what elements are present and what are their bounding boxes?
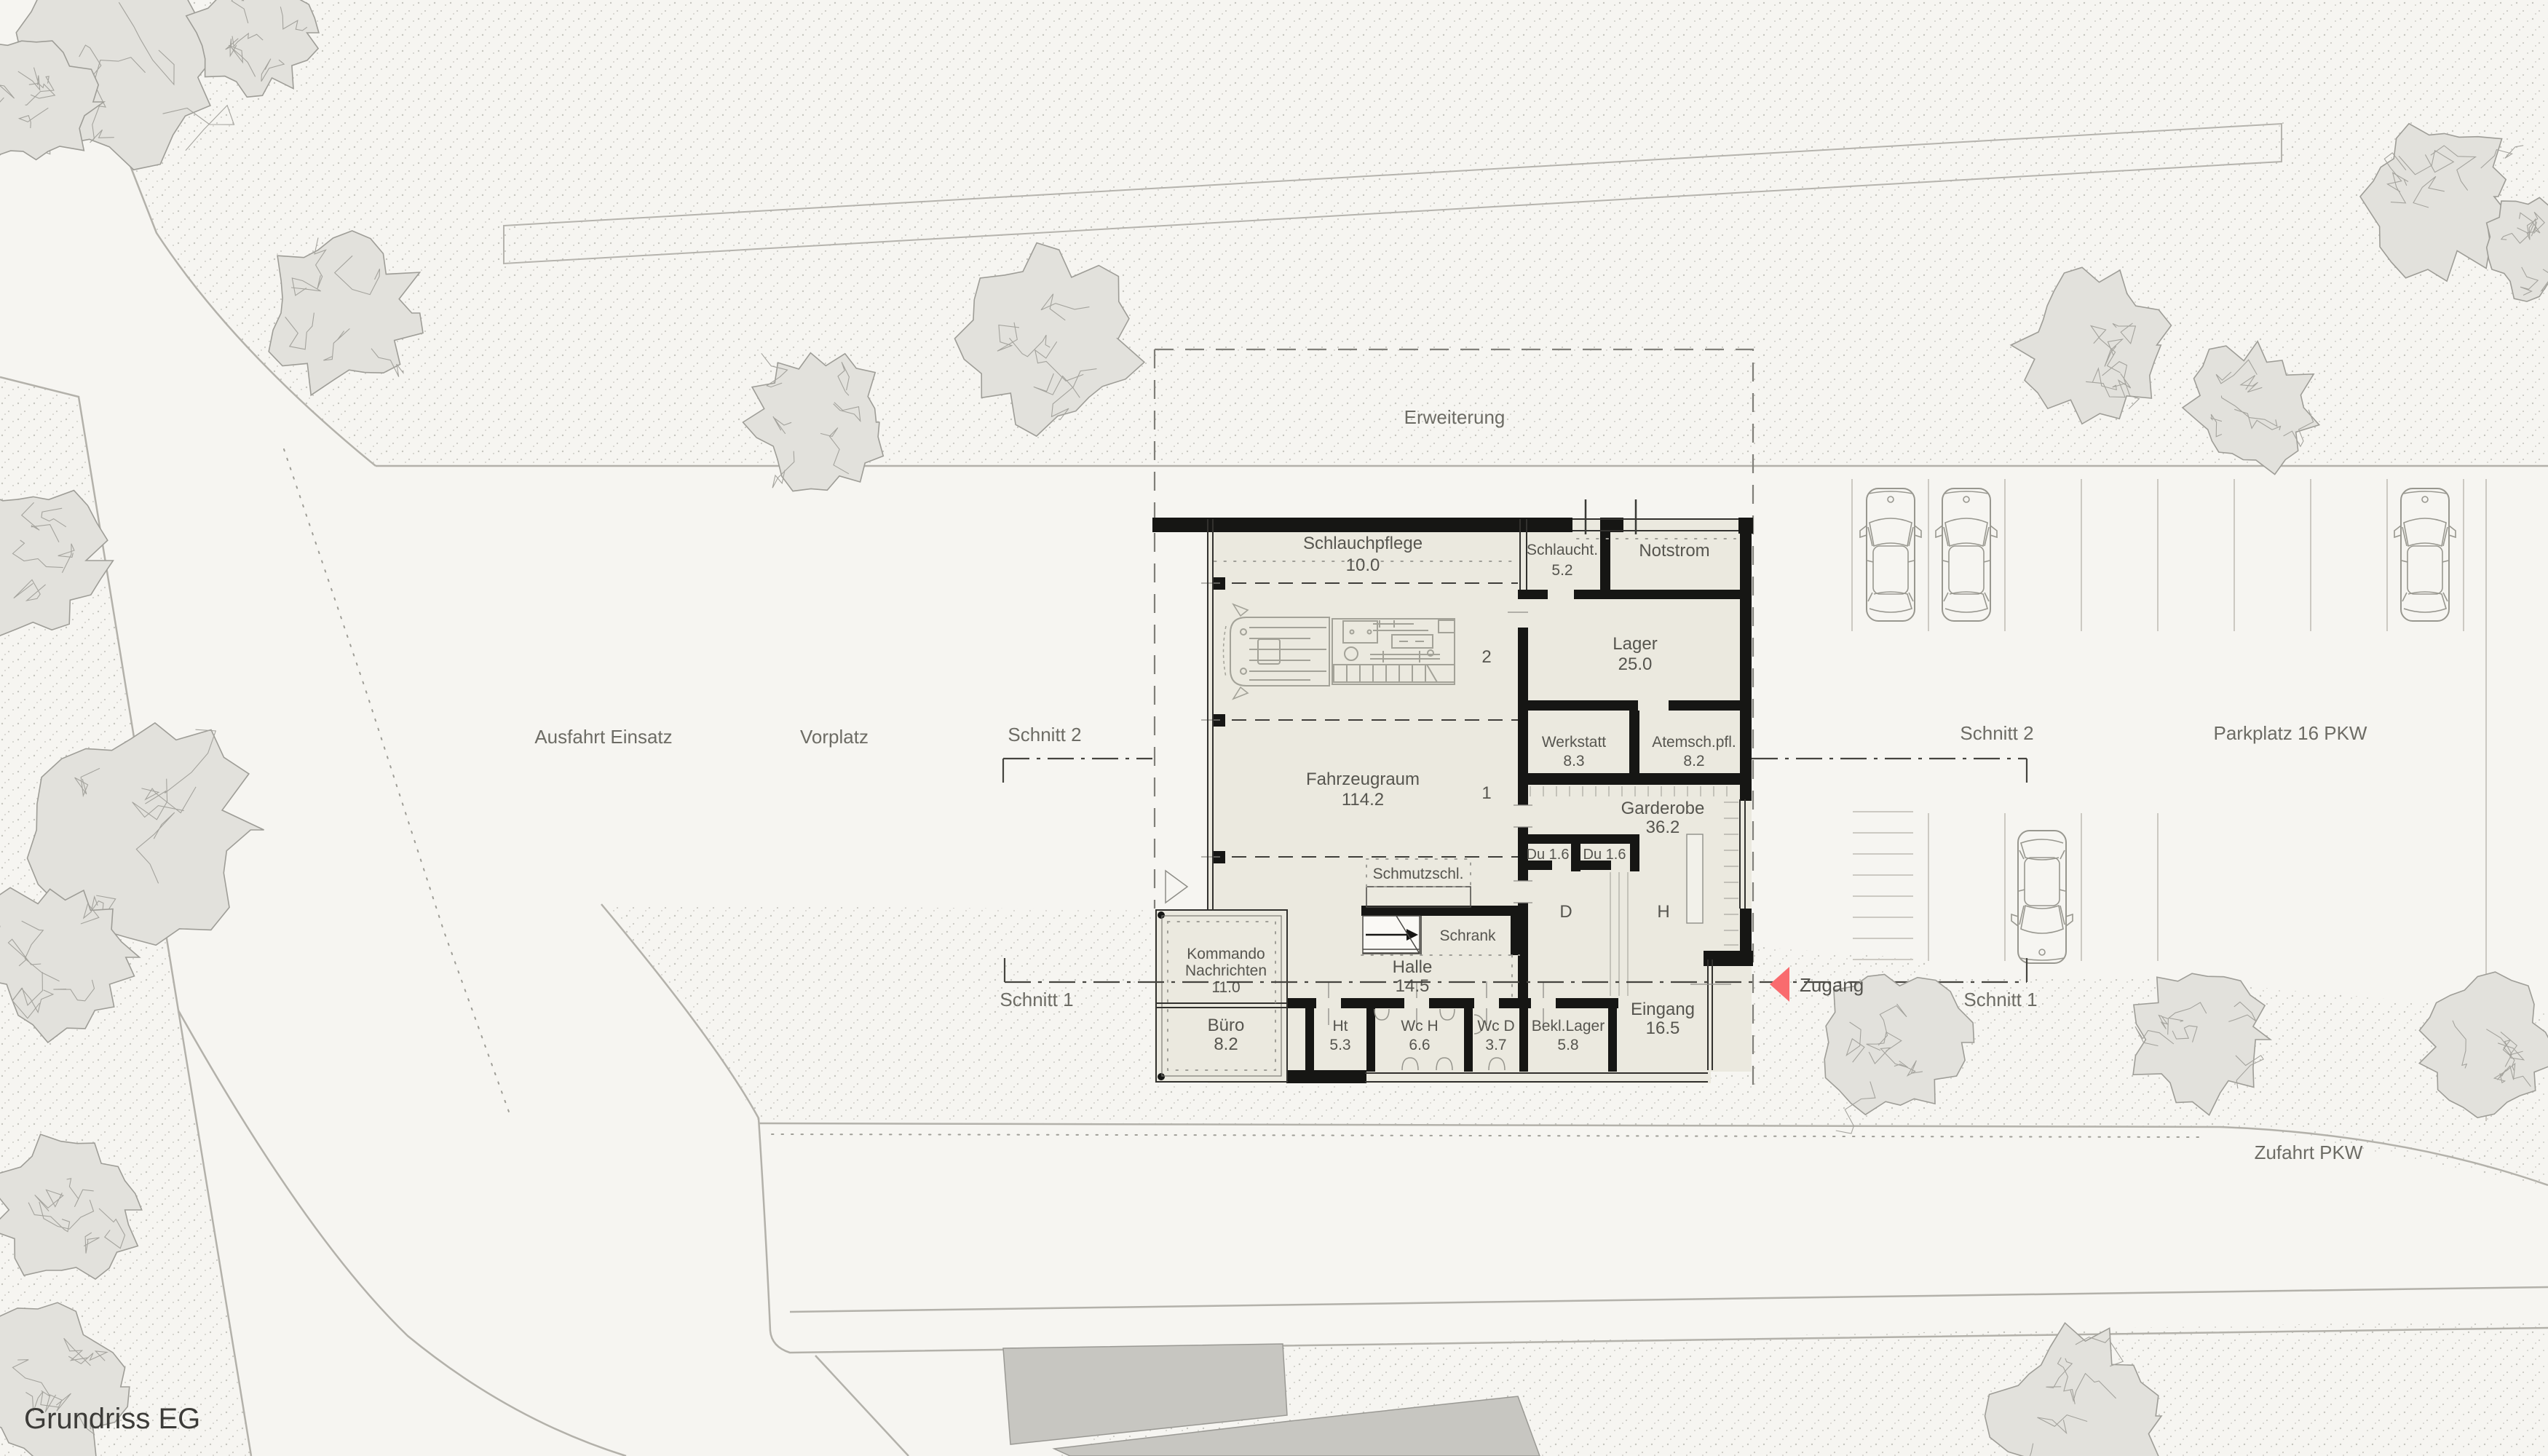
area-label-eingang: 16.5 bbox=[1646, 1018, 1680, 1038]
building-floor bbox=[1208, 519, 1752, 1072]
room-label-kommando-1: Kommando bbox=[1187, 946, 1265, 962]
room-label-ht: Ht bbox=[1333, 1018, 1348, 1034]
area-label-schlauchpflege: 10.0 bbox=[1346, 555, 1380, 575]
room-label-eingang: Eingang bbox=[1631, 1000, 1695, 1019]
room-label-werkstatt: Werkstatt bbox=[1542, 734, 1606, 751]
area-label-wc-h: 6.6 bbox=[1409, 1037, 1430, 1053]
area-label-halle: 14.5 bbox=[1396, 976, 1430, 996]
lane-number-1: 1 bbox=[1481, 783, 1491, 803]
label-schnitt2-right: Schnitt 2 bbox=[1960, 722, 2033, 744]
room-label-buero: Büro bbox=[1208, 1016, 1245, 1035]
car bbox=[1936, 488, 1997, 621]
label-zugang: Zugang bbox=[1800, 974, 1864, 996]
stair bbox=[1363, 916, 1420, 954]
texture-north bbox=[66, 0, 2548, 466]
area-label-lager: 25.0 bbox=[1618, 654, 1653, 674]
car bbox=[2011, 831, 2073, 963]
area-label-schlaucht: 5.2 bbox=[1551, 562, 1572, 579]
room-label-garderobe: Garderobe bbox=[1621, 799, 1705, 818]
page-title: Grundriss EG bbox=[24, 1403, 200, 1435]
room-label-schrank: Schrank bbox=[1439, 927, 1496, 944]
area-label-buero: 8.2 bbox=[1214, 1034, 1238, 1054]
label-erweiterung: Erweiterung bbox=[1404, 406, 1506, 428]
room-label-halle: Halle bbox=[1393, 957, 1433, 977]
area-label-bekleidungslager: 5.8 bbox=[1557, 1037, 1578, 1053]
label-schnitt1-left: Schnitt 1 bbox=[1000, 989, 1073, 1010]
room-label-bekleidungslager: Bekl.Lager bbox=[1532, 1018, 1605, 1034]
room-label-fahrzeugraum: Fahrzeugraum bbox=[1306, 769, 1420, 789]
room-label-dusche-2: Du 1.6 bbox=[1583, 847, 1626, 863]
label-zufahrt-pkw: Zufahrt PKW bbox=[2255, 1142, 2363, 1163]
lane-number-2: 2 bbox=[1481, 647, 1491, 667]
area-label-fahrzeugraum: 114.2 bbox=[1342, 790, 1384, 810]
room-label-wc-d: Wc D bbox=[1477, 1018, 1514, 1034]
room-label-schlauchpflege: Schlauchpflege bbox=[1303, 534, 1423, 553]
car bbox=[1860, 488, 1921, 621]
area-label-werkstatt: 8.3 bbox=[1563, 753, 1584, 769]
building-fire-station: Schlauchpflege 10.0 Schlaucht. 5.2 Notst… bbox=[1152, 499, 1753, 1083]
zone-label-damen: D bbox=[1559, 902, 1572, 922]
site-plan-drawing: Schlauchpflege 10.0 Schlaucht. 5.2 Notst… bbox=[0, 0, 2548, 1456]
room-label-lager: Lager bbox=[1613, 634, 1657, 654]
room-label-notstrom: Notstrom bbox=[1639, 541, 1709, 561]
car bbox=[2394, 488, 2456, 621]
area-label-ht: 5.3 bbox=[1329, 1037, 1350, 1053]
zone-label-herren: H bbox=[1657, 902, 1669, 922]
label-schnitt1-right: Schnitt 1 bbox=[1963, 989, 2037, 1010]
area-label-garderobe: 36.2 bbox=[1646, 818, 1680, 837]
room-label-schmutzschleuse: Schmutzschl. bbox=[1373, 866, 1464, 882]
label-vorplatz: Vorplatz bbox=[800, 726, 869, 748]
label-ausfahrt-einsatz: Ausfahrt Einsatz bbox=[534, 726, 672, 748]
area-label-atemschutz: 8.2 bbox=[1683, 753, 1704, 769]
label-parkplatz: Parkplatz 16 PKW bbox=[2214, 722, 2367, 744]
room-label-kommando-2: Nachrichten bbox=[1185, 962, 1267, 979]
floor-plan-sheet: Schlauchpflege 10.0 Schlaucht. 5.2 Notst… bbox=[0, 0, 2548, 1456]
room-label-atemschutz: Atemsch.pfl. bbox=[1652, 734, 1736, 751]
area-label-wc-d: 3.7 bbox=[1485, 1037, 1506, 1053]
building-floor-annex bbox=[1155, 910, 1214, 1083]
label-schnitt2-left: Schnitt 2 bbox=[1008, 724, 1081, 745]
room-label-dusche-1: Du 1.6 bbox=[1527, 847, 1570, 863]
room-label-wc-h: Wc H bbox=[1401, 1018, 1438, 1034]
room-label-schlaucht: Schlaucht. bbox=[1527, 542, 1598, 558]
